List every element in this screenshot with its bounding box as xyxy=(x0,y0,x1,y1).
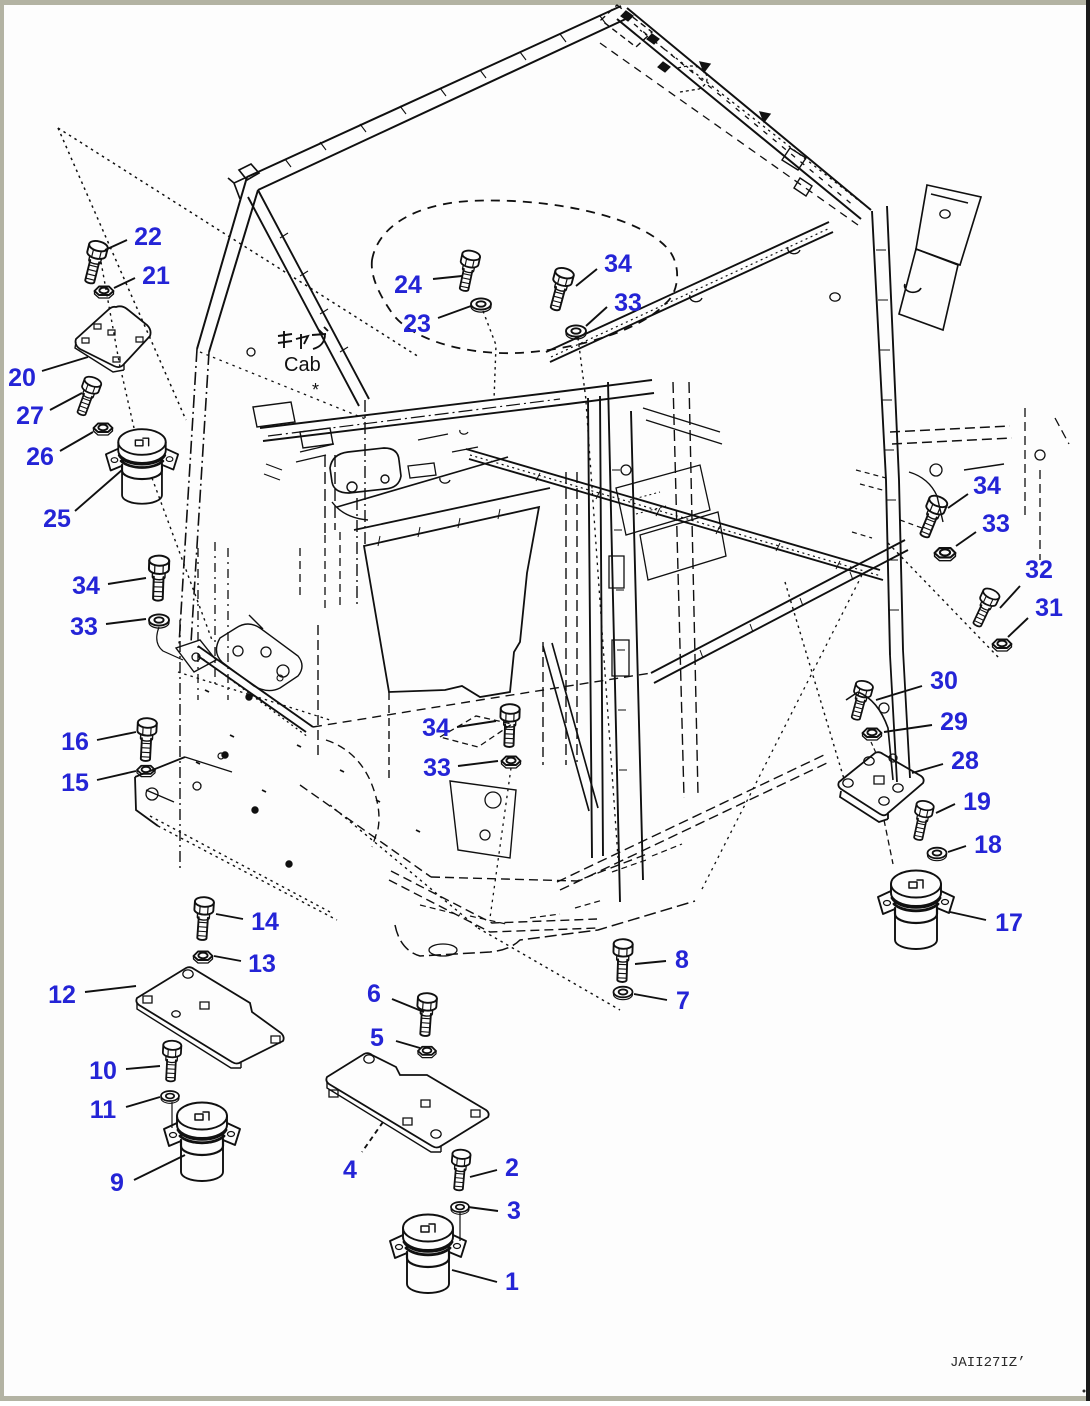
svg-text:3: 3 xyxy=(507,1197,521,1225)
svg-text:9: 9 xyxy=(110,1169,124,1197)
svg-text:7: 7 xyxy=(676,987,690,1015)
svg-text:11: 11 xyxy=(90,1096,117,1124)
svg-text:20: 20 xyxy=(8,364,36,392)
svg-text:Cab: Cab xyxy=(284,354,321,376)
svg-text:4: 4 xyxy=(343,1156,357,1184)
svg-text:34: 34 xyxy=(604,250,632,278)
svg-text:29: 29 xyxy=(940,708,968,736)
svg-text:34: 34 xyxy=(72,572,100,600)
svg-text:33: 33 xyxy=(614,289,642,317)
svg-text:15: 15 xyxy=(61,769,89,797)
svg-text:JAII27IZ’: JAII27IZ’ xyxy=(950,1355,1026,1371)
svg-text:33: 33 xyxy=(423,754,451,782)
svg-text:5: 5 xyxy=(370,1024,384,1052)
svg-text:17: 17 xyxy=(995,909,1023,937)
svg-text:*: * xyxy=(312,380,319,400)
svg-text:34: 34 xyxy=(422,714,450,742)
svg-text:14: 14 xyxy=(251,908,279,936)
svg-text:16: 16 xyxy=(61,728,89,756)
svg-text:33: 33 xyxy=(70,613,98,641)
svg-text:10: 10 xyxy=(89,1057,117,1085)
svg-text:6: 6 xyxy=(367,980,381,1008)
svg-text:12: 12 xyxy=(48,981,76,1009)
svg-text:24: 24 xyxy=(394,271,422,299)
svg-text:33: 33 xyxy=(982,510,1010,538)
svg-text:8: 8 xyxy=(675,946,689,974)
svg-text:34: 34 xyxy=(973,472,1001,500)
svg-text:18: 18 xyxy=(974,831,1002,859)
svg-text:26: 26 xyxy=(26,443,54,471)
svg-text:27: 27 xyxy=(16,402,44,430)
svg-text:28: 28 xyxy=(951,747,979,775)
svg-text:23: 23 xyxy=(403,310,431,338)
svg-text:32: 32 xyxy=(1025,556,1053,584)
svg-text:22: 22 xyxy=(134,223,162,251)
svg-text:31: 31 xyxy=(1035,594,1063,622)
svg-text:19: 19 xyxy=(963,788,991,816)
svg-text:1: 1 xyxy=(505,1268,519,1296)
svg-text:30: 30 xyxy=(930,667,958,695)
svg-text:25: 25 xyxy=(43,505,71,533)
svg-text:13: 13 xyxy=(248,950,276,978)
svg-text:21: 21 xyxy=(142,262,170,290)
svg-text:2: 2 xyxy=(505,1154,519,1182)
